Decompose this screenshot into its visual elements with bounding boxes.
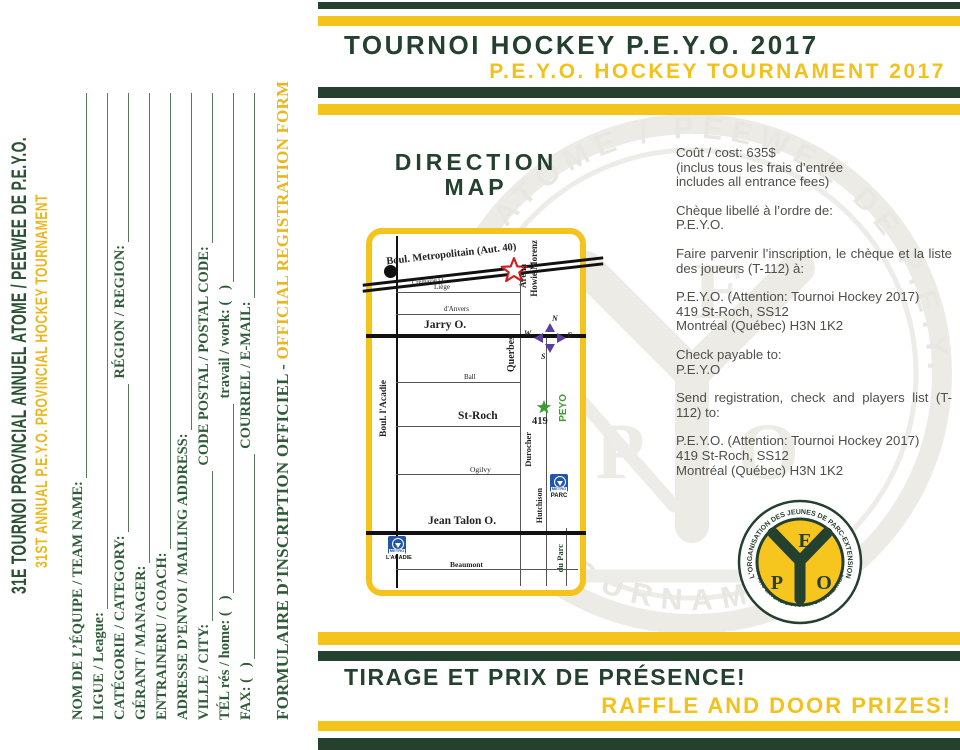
home-phone-label: TÉL rés / home: ( ) [217, 596, 234, 720]
form-row-league: LIGUE / League: [87, 90, 108, 720]
compass-south-arrow-icon [545, 344, 555, 353]
peyo-address-number: 419 [532, 416, 548, 427]
league-blank-line [92, 93, 108, 609]
stripe-footer-yellow-top [318, 632, 960, 645]
street-stroch-label: St-Roch [458, 410, 498, 422]
fax-label: FAX: ( ) [238, 662, 255, 720]
raffle-title-english: RAFFLE AND DOOR PRIZES! [601, 693, 952, 719]
manager-blank-line [134, 93, 150, 563]
left-headline-french: 31E TOURNOI PROVNCIAL ANNUEL ATOME / PEE… [8, 137, 32, 594]
street-liege-label: Liège [434, 283, 450, 291]
coach-label: ENTRAINERU / COACH: [154, 552, 171, 720]
compass-north-label: N [552, 314, 558, 323]
stripe-header-yellow [318, 104, 960, 115]
direction-map-title-line2: MAP [366, 175, 586, 200]
street-beaumont-label: Beaumont [450, 560, 483, 569]
street-jeantalon-line [366, 531, 586, 535]
email-label: COURRIEL / E-MAIL: [238, 301, 255, 448]
street-hutchison-label: Hutchison [535, 488, 544, 523]
work-phone-label: travail / work: ( ) [217, 285, 234, 399]
metro-acadie-label: L'ACADIE [386, 555, 408, 561]
form-row-fax-email: FAX: ( ) COURRIEL / E-MAIL: [234, 90, 255, 720]
form-row-team-name: NOM DE L’ÉQUIPE / TEAM NAME: [66, 90, 87, 720]
main-title-french: TOURNOI HOCKEY P.E.Y.O. 2017 [344, 30, 819, 61]
compass-east-label: E [567, 331, 572, 340]
send-instructions-fr-paragraph: Faire parvenir l’inscription, le chèque … [676, 247, 952, 276]
street-beaumont-line [396, 569, 578, 570]
form-footer-french: FORMULAIRE D’INSCRIPTION OFFICIEL - [273, 360, 292, 720]
postal-code-label: CODE POSTAL / POSTAL CODE: [196, 246, 213, 465]
compass-west-label: W [524, 329, 531, 338]
highway-line-bottom [363, 262, 604, 293]
street-jarry-label: Jarry O. [424, 319, 466, 331]
manager-label: GÉRANT / MANAGER: [133, 566, 150, 720]
stripe-bottom-green [318, 738, 960, 750]
direction-map-title-line1: DIRECTION [366, 150, 586, 175]
peyo-organization-logo: L'ORGANISATION DES JEUNES DE PARC-EXTENS… [737, 499, 863, 625]
metro-acadie-station: METRO L'ACADIE [386, 536, 408, 561]
league-label: LIGUE / League: [91, 612, 108, 720]
direction-map-title: DIRECTION MAP [366, 150, 586, 201]
metro-parc-label: PARC [548, 493, 570, 499]
cost-paragraph: Coût / cost: 635$ (inclus tous les frais… [676, 146, 952, 190]
raffle-title-french: TIRAGE ET PRIX DE PRÉSENCE! [344, 664, 746, 691]
form-row-mailing-address: ADRESSE D’ENVOI / MAILING ADDRESS: [171, 90, 192, 720]
metro-word-label: METRO [551, 487, 567, 492]
category-blank-line [113, 384, 129, 533]
peyo-label: PEYO [558, 394, 569, 422]
fax-blank-line [239, 454, 255, 659]
street-liege-line [396, 292, 520, 293]
compass-east-arrow-icon [557, 333, 566, 343]
form-row-phone: TÉL rés / home: ( ) travail / work: ( ) [213, 90, 234, 720]
street-jeantalon-label: Jean Talon O. [428, 515, 496, 527]
postal-code-blank-line [197, 93, 213, 243]
form-row-manager: GÉRANT / MANAGER: [129, 90, 150, 720]
stripe-top-green [318, 2, 960, 9]
mailing-address-label: ADRESSE D’ENVOI / MAILING ADDRESS: [175, 433, 192, 720]
cheque-payable-fr-paragraph: Chèque libellé à l’ordre de: P.E.Y.O. [676, 204, 952, 233]
logo-letter-p: P [771, 572, 783, 594]
compass-rose: N W S E [530, 318, 570, 358]
team-name-blank-line [71, 93, 87, 478]
form-footer-english: OFFICIAL REGISTRATION FORM [273, 81, 292, 360]
street-durocher-label: Durocher [523, 432, 533, 467]
region-label: RÉGION / REGION: [112, 245, 129, 379]
region-blank-line [113, 93, 129, 242]
work-phone-blank-line [218, 93, 234, 282]
peyo-location-star-icon [536, 399, 552, 415]
logo-letter-o: O [816, 572, 832, 594]
street-danvers-line [396, 314, 520, 315]
registration-info: Coût / cost: 635$ (inclus tous les frais… [676, 146, 952, 492]
compass-south-label: S [541, 352, 545, 361]
mailing-address-fr-paragraph: P.E.Y.O. (Attention: Tournoi Hockey 2017… [676, 290, 952, 334]
street-metropolitain-label: Boul. Metropolitain (Aut. 40) [386, 242, 517, 268]
street-duparc-line [566, 528, 567, 586]
email-blank-line [239, 93, 255, 298]
metro-parc-station: METRO PARC [548, 474, 570, 499]
compass-north-arrow-icon [545, 323, 555, 332]
street-ball-line [396, 382, 520, 383]
stripe-header-green [318, 87, 960, 98]
arena-label-line2: Howie Morenz [529, 240, 539, 297]
stripe-footer-green-top [318, 651, 960, 661]
form-row-coach: ENTRAINERU / COACH: [150, 90, 171, 720]
metro-logo-icon: METRO [388, 536, 406, 554]
left-headline-block: 31E TOURNOI PROVNCIAL ANNUEL ATOME / PEE… [8, 6, 64, 594]
flyer-page: 31E TOURNOI PROVNCIAL ANNUEL ATOME / PEE… [0, 0, 960, 750]
category-label: CATÉGORIE / CATEGORY: [112, 535, 129, 720]
home-phone-blank-line [218, 404, 234, 593]
metro-word-label: METRO [389, 549, 405, 554]
team-name-label: NOM DE L’ÉQUIPE / TEAM NAME: [70, 481, 87, 720]
city-blank-line [197, 471, 213, 621]
registration-form: NOM DE L’ÉQUIPE / TEAM NAME: LIGUE / Lea… [64, 6, 312, 748]
mailing-address-en-paragraph: P.E.Y.O. (Attention: Tournoi Hockey 2017… [676, 434, 952, 478]
registration-form-rows: NOM DE L’ÉQUIPE / TEAM NAME: LIGUE / Lea… [64, 6, 293, 748]
form-footer-title: FORMULAIRE D’INSCRIPTION OFFICIEL - OFFI… [273, 90, 293, 720]
metro-logo-icon: METRO [550, 474, 568, 492]
form-row-city-postal: VILLE / CITY: CODE POSTAL / POSTAL CODE: [192, 90, 213, 720]
send-instructions-en-paragraph: Send registration, check and players lis… [676, 391, 952, 420]
compass-west-arrow-icon [534, 333, 543, 343]
main-title-english: P.E.Y.O. HOCKEY TOURNAMENT 2017 [489, 60, 946, 84]
street-ogilvy-label: Ogilvy [470, 465, 491, 474]
street-ogilvy-line [396, 474, 520, 475]
street-hutchison-line [546, 334, 547, 586]
stripe-bottom-yellow [318, 721, 960, 731]
cheque-payable-en-paragraph: Check payable to: P.E.Y.O [676, 348, 952, 377]
street-querbes-label: Querbes [506, 336, 517, 372]
direction-map: Boul. Metropolitain (Aut. 40) Crémazie O… [366, 228, 586, 596]
street-acadie-label: Boul. l'Acadie [379, 380, 389, 437]
logo-letter-e: E [798, 530, 811, 552]
street-ball-label: Ball [464, 373, 476, 381]
street-stroch-line [396, 426, 520, 427]
mailing-address-blank-line [176, 93, 192, 430]
street-danvers-label: d'Anvers [444, 305, 469, 313]
city-label: VILLE / CITY: [196, 624, 213, 720]
coach-blank-line [155, 93, 171, 549]
form-row-category-region: CATÉGORIE / CATEGORY: RÉGION / REGION: [108, 90, 129, 720]
stripe-top-yellow [318, 16, 960, 26]
left-headline-english: 31ST ANNUAL P.E.Y.O. PROVINCIAL HOCKEY T… [32, 194, 52, 568]
street-querbes-line [520, 280, 521, 586]
